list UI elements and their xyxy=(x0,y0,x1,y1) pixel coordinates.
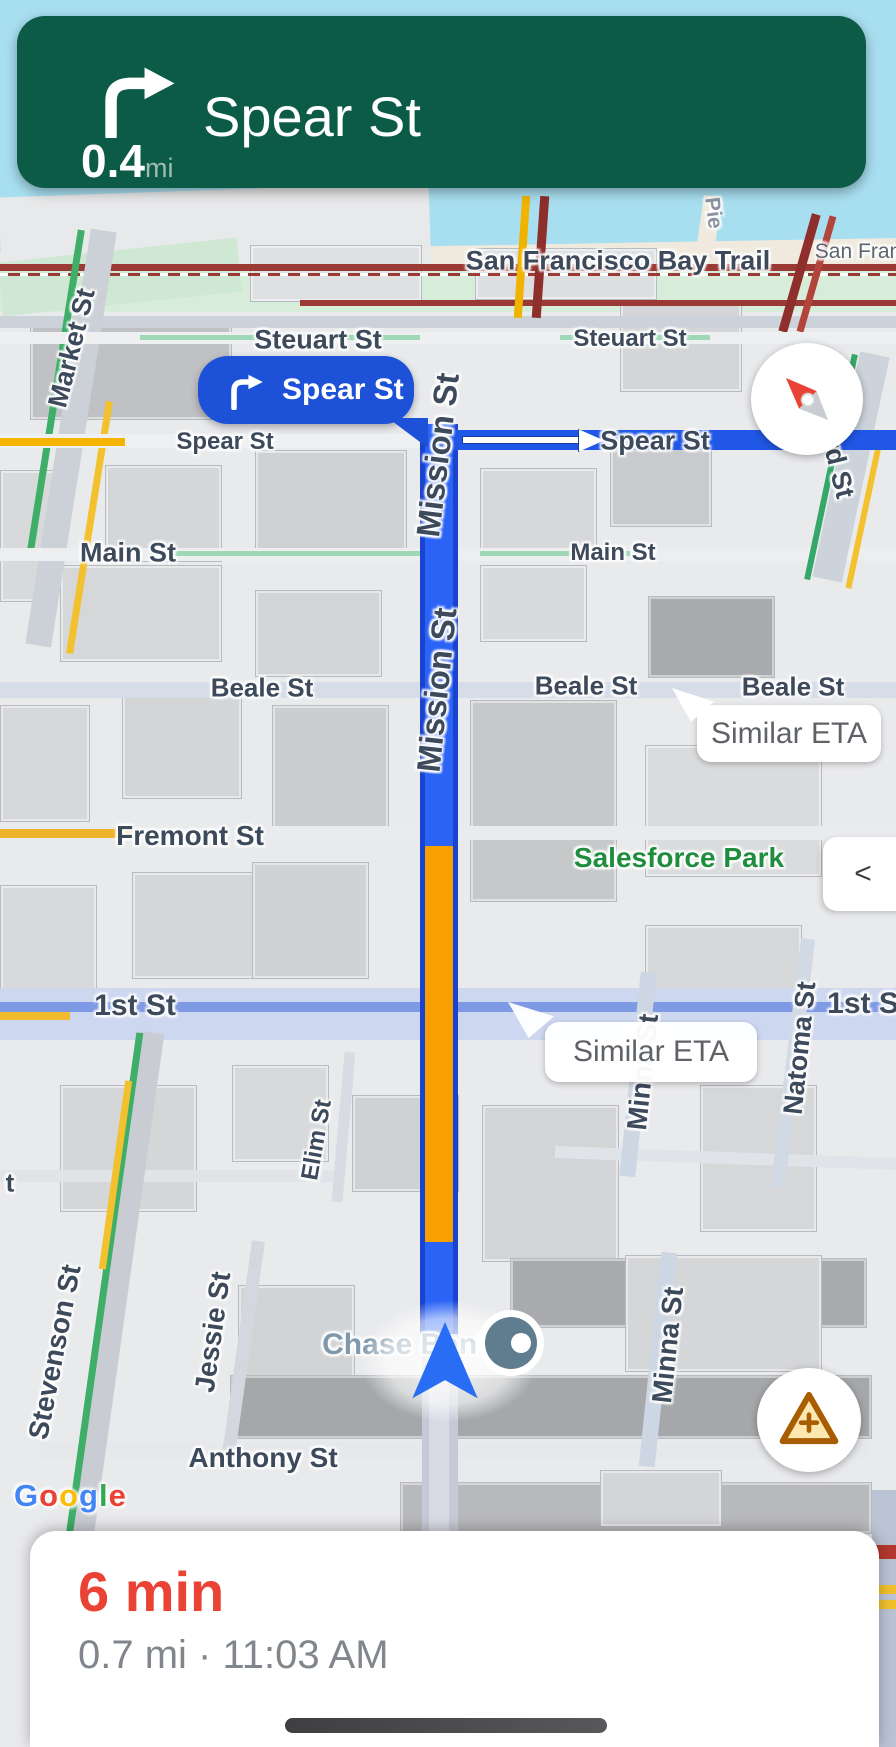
building xyxy=(272,705,389,832)
distance-unit: mi xyxy=(145,153,174,183)
street-label-spear-e: Spear St xyxy=(600,426,710,457)
building xyxy=(252,862,369,979)
chevron-left-icon: < xyxy=(854,857,872,891)
eta-bubble-label: Similar ETA xyxy=(573,1035,729,1069)
building xyxy=(482,1105,619,1262)
building xyxy=(600,1470,722,1527)
spear-traffic-yellow xyxy=(0,438,125,446)
street-label-bay-trail: San Francisco Bay Trail xyxy=(466,246,771,277)
compass-needle-icon xyxy=(763,355,851,443)
map[interactable]: Pie San Francisco Bay Trail San Fran Mar… xyxy=(0,0,896,1747)
main-traffic-green xyxy=(150,551,420,556)
turn-right-icon xyxy=(95,64,187,138)
embarcadero-road xyxy=(0,316,896,328)
building xyxy=(0,885,97,1002)
collapse-panel-button[interactable]: < xyxy=(823,837,896,911)
first-st-traffic-yellow xyxy=(0,1012,70,1020)
street-label-fremont: Fremont St xyxy=(116,820,264,852)
street-label-steuart-w: Steuart St xyxy=(254,325,382,356)
poi-label-salesforce-park: Salesforce Park xyxy=(574,842,784,874)
eta-bubble-1st[interactable]: Similar ETA xyxy=(545,1022,757,1082)
eta-bubble-beale[interactable]: Similar ETA xyxy=(697,705,881,762)
home-indicator[interactable] xyxy=(285,1718,607,1733)
eta-distance-arrival: 0.7 mi · 11:03 AM xyxy=(78,1633,389,1678)
fremont-traffic-yellow xyxy=(0,829,130,838)
building xyxy=(648,596,775,678)
street-label-beale-m: Beale St xyxy=(535,671,638,702)
street-label-1st-e: 1st S xyxy=(827,987,896,1021)
building xyxy=(255,590,382,677)
building xyxy=(255,450,407,557)
building xyxy=(132,872,259,979)
eta-bubble-label: Similar ETA xyxy=(711,717,867,751)
building xyxy=(122,692,242,799)
street-label-stevenson: Stevenson St xyxy=(22,1262,87,1442)
google-logo: Google xyxy=(14,1478,127,1514)
steuart-st-road xyxy=(0,332,896,344)
route-direction-arrow xyxy=(462,436,580,444)
street-label-main-e: Main St xyxy=(570,539,655,567)
eta-time: 6 min xyxy=(78,1559,224,1624)
chase-bank-poi-icon[interactable] xyxy=(478,1310,544,1376)
street-label-mission-n: Mission St xyxy=(409,371,467,539)
street-label-beale-w: Beale St xyxy=(211,673,314,704)
street-label-pier: Pie xyxy=(699,196,727,230)
navigation-banner[interactable]: Spear St 0.4mi xyxy=(17,16,866,188)
route-congestion-segment xyxy=(425,846,453,1242)
turn-right-icon xyxy=(224,370,268,410)
street-label-steuart-e: Steuart St xyxy=(573,325,686,353)
turn-callout-label: Spear St xyxy=(282,373,404,407)
street-label-main-w: Main St xyxy=(80,538,176,569)
compass-button[interactable] xyxy=(751,343,863,455)
street-label-partial-t: t xyxy=(6,1168,15,1199)
street-label-san-fran: San Fran xyxy=(815,240,896,264)
next-street-name: Spear St xyxy=(203,84,421,149)
building xyxy=(480,565,587,642)
cross-road-west xyxy=(0,1170,345,1182)
warning-add-icon xyxy=(774,1387,844,1453)
street-label-anthony: Anthony St xyxy=(188,1442,337,1474)
navigation-screen: Pie San Francisco Bay Trail San Fran Mar… xyxy=(0,0,896,1747)
street-label-spear-w: Spear St xyxy=(176,428,273,456)
trip-summary-card[interactable]: 6 min 0.7 mi · 11:03 AM xyxy=(30,1531,879,1747)
street-label-beale-e: Beale St xyxy=(742,672,845,703)
report-incident-button[interactable] xyxy=(757,1368,861,1472)
turn-callout[interactable]: Spear St xyxy=(198,356,414,424)
current-location-arrow xyxy=(403,1322,487,1402)
route-mission-st xyxy=(420,424,458,1334)
distance-to-turn: 0.4mi xyxy=(81,134,173,188)
building xyxy=(0,705,90,822)
street-label-1st-w: 1st St xyxy=(94,989,176,1023)
